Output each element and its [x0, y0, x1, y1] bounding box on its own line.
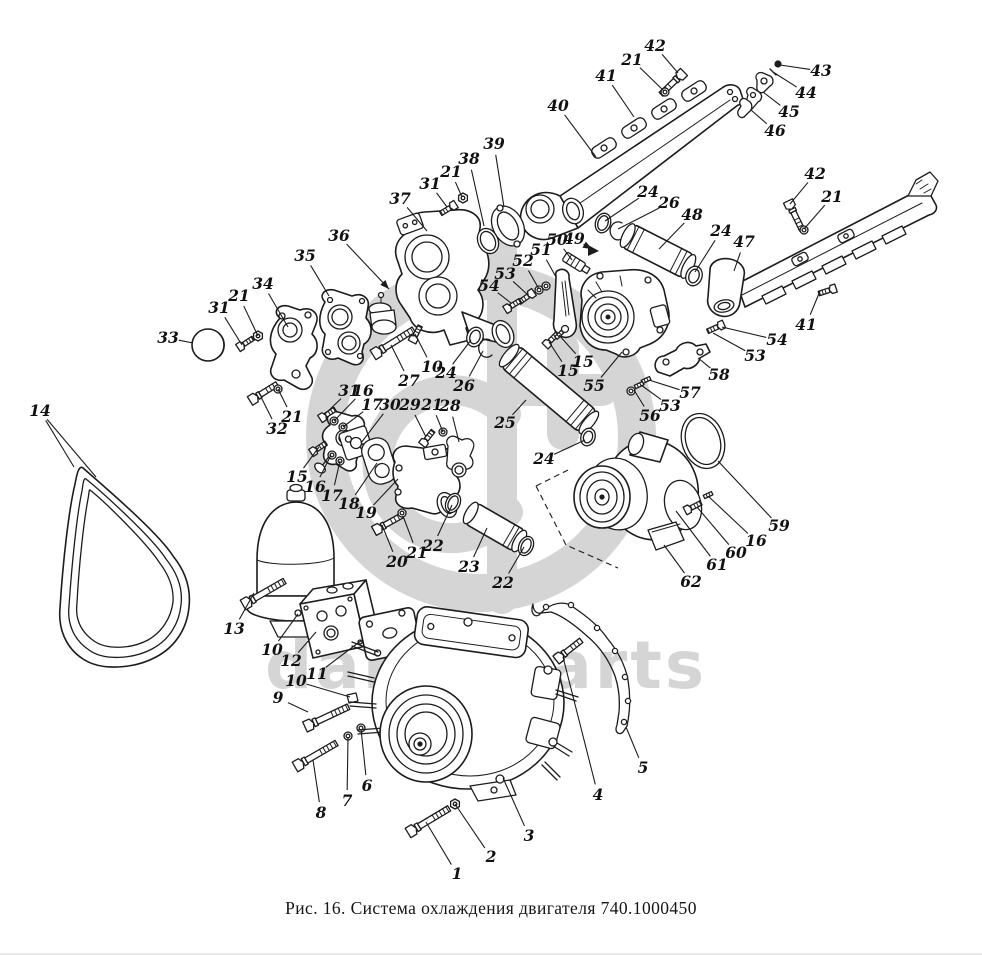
- part-housing-34: [192, 306, 317, 390]
- callout-label: 41: [795, 315, 817, 334]
- callout-label: 44: [795, 83, 817, 102]
- callout-label: 31: [208, 298, 230, 317]
- callout-leader: [503, 778, 525, 826]
- callout-leader: [640, 68, 664, 91]
- callout-label: 24: [636, 182, 659, 201]
- callout-label: 11: [306, 664, 328, 683]
- callout-label: 27: [397, 371, 420, 390]
- callout-label: 12: [280, 651, 302, 670]
- callout-label: 21: [227, 286, 250, 305]
- callout-leader: [649, 380, 680, 390]
- callout-label: 40: [547, 96, 569, 115]
- callout-leader: [415, 415, 426, 437]
- part-drive-55: [580, 270, 670, 357]
- callout-label: 5: [638, 758, 649, 777]
- callout-label: 26: [657, 193, 680, 212]
- callout-leader: [225, 317, 242, 345]
- callout-label: 2: [485, 847, 497, 866]
- callout-leader: [780, 65, 810, 69]
- part-clamps-43-46: [738, 60, 782, 117]
- part-v-belt-14: [60, 467, 190, 667]
- callout-label: 57: [679, 383, 701, 402]
- callout-label: 13: [223, 619, 245, 638]
- callout-leader: [313, 760, 319, 802]
- callout-label: 7: [342, 791, 353, 810]
- callout-label: 42: [644, 36, 666, 55]
- callout-leader: [662, 54, 678, 73]
- callout-label: 42: [804, 164, 826, 183]
- callout-label: 54: [478, 276, 500, 295]
- callout-label: 30: [379, 395, 401, 414]
- callout-leader: [244, 306, 258, 336]
- callout-label: 61: [706, 555, 728, 574]
- callout-leader: [664, 545, 685, 573]
- callout-label: 22: [421, 536, 444, 555]
- callout-leader: [261, 397, 272, 419]
- callout-label: 33: [157, 328, 179, 347]
- callout-label: 21: [280, 407, 303, 426]
- callout-leader: [496, 155, 504, 207]
- callout-leader: [612, 85, 634, 117]
- callout-leader: [713, 333, 745, 351]
- callout-leader: [722, 327, 766, 337]
- callout-leader: [437, 193, 447, 207]
- callout-leader: [804, 205, 825, 229]
- callout-label: 28: [438, 396, 461, 415]
- callout-label: 46: [764, 121, 786, 140]
- callout-label: 22: [491, 573, 514, 592]
- callout-label: 47: [733, 232, 755, 251]
- callout-label: 14: [29, 401, 51, 420]
- callout-label: 20: [385, 552, 408, 571]
- callout-leader: [455, 804, 485, 848]
- callout-label: 53: [659, 396, 681, 415]
- callout-leader: [47, 419, 96, 477]
- callout-leader: [626, 727, 639, 758]
- callout-label: 24: [532, 449, 555, 468]
- callout-label: 53: [744, 346, 766, 365]
- callout-leader: [278, 389, 287, 407]
- callout-label: 9: [273, 688, 284, 707]
- callout-label: 35: [294, 246, 316, 265]
- callout-label: 49: [563, 229, 585, 248]
- callout-leader: [415, 334, 427, 357]
- callout-leader: [288, 703, 308, 712]
- callout-label: 23: [457, 557, 480, 576]
- callout-label: 56: [639, 406, 661, 425]
- callout-leader: [426, 822, 451, 865]
- callout-label: 34: [252, 274, 274, 293]
- callout-label: 39: [483, 134, 505, 153]
- callout-leader: [179, 340, 193, 343]
- figure-caption: Рис. 16. Система охлаждения двигателя 74…: [0, 898, 982, 919]
- callout-leader: [391, 345, 404, 371]
- callout-label: 38: [458, 149, 480, 168]
- callout-leader: [718, 461, 771, 518]
- callout-label: 26: [452, 376, 475, 395]
- callout-label: 4: [593, 785, 604, 804]
- callout-leader: [469, 351, 483, 376]
- callout-leader: [347, 737, 348, 790]
- callout-leader: [46, 420, 74, 467]
- callout-label: 8: [316, 803, 327, 822]
- callout-leader: [810, 291, 820, 315]
- cooling-system-diagram: daru parts: [0, 0, 982, 953]
- callout-label: 36: [328, 226, 350, 245]
- callout-leader: [546, 260, 556, 277]
- callout-label: 59: [768, 516, 790, 535]
- part-bracket-58: [655, 343, 710, 376]
- callout-label: 54: [766, 330, 788, 349]
- callout-label: 21: [620, 50, 643, 69]
- callout-label: 29: [398, 395, 421, 414]
- callout-label: 41: [595, 66, 617, 85]
- callout-label: 10: [421, 357, 443, 376]
- callout-label: 25: [493, 413, 516, 432]
- parts-catalog-page: daru parts: [0, 0, 982, 955]
- callout-label: 45: [778, 102, 800, 121]
- part-gasket-35: [320, 290, 371, 365]
- callout-label: 43: [810, 61, 832, 80]
- callout-label: 31: [419, 174, 441, 193]
- callout-leader: [565, 115, 596, 157]
- callout-label: 62: [680, 572, 702, 591]
- callout-label: 10: [285, 671, 307, 690]
- callout-label: 16: [745, 531, 767, 550]
- callout-label: 55: [583, 376, 605, 395]
- callout-label: 1: [452, 864, 463, 883]
- callout-label: 15: [572, 352, 594, 371]
- callout-leader: [311, 265, 329, 296]
- callout-leader: [697, 507, 729, 545]
- callout-label: 21: [820, 187, 843, 206]
- callout-leader: [361, 729, 366, 775]
- callout-label: 3: [524, 826, 535, 845]
- callout-leader: [790, 182, 808, 204]
- callout-leader: [347, 244, 389, 289]
- callout-label: 37: [389, 189, 411, 208]
- callout-leader: [773, 72, 797, 87]
- callout-label: 58: [708, 365, 730, 384]
- callout-label: 24: [709, 221, 732, 240]
- callout-label: 48: [681, 205, 703, 224]
- callout-label: 19: [355, 503, 377, 522]
- callout-label: 6: [362, 776, 373, 795]
- callout-label: 60: [725, 543, 747, 562]
